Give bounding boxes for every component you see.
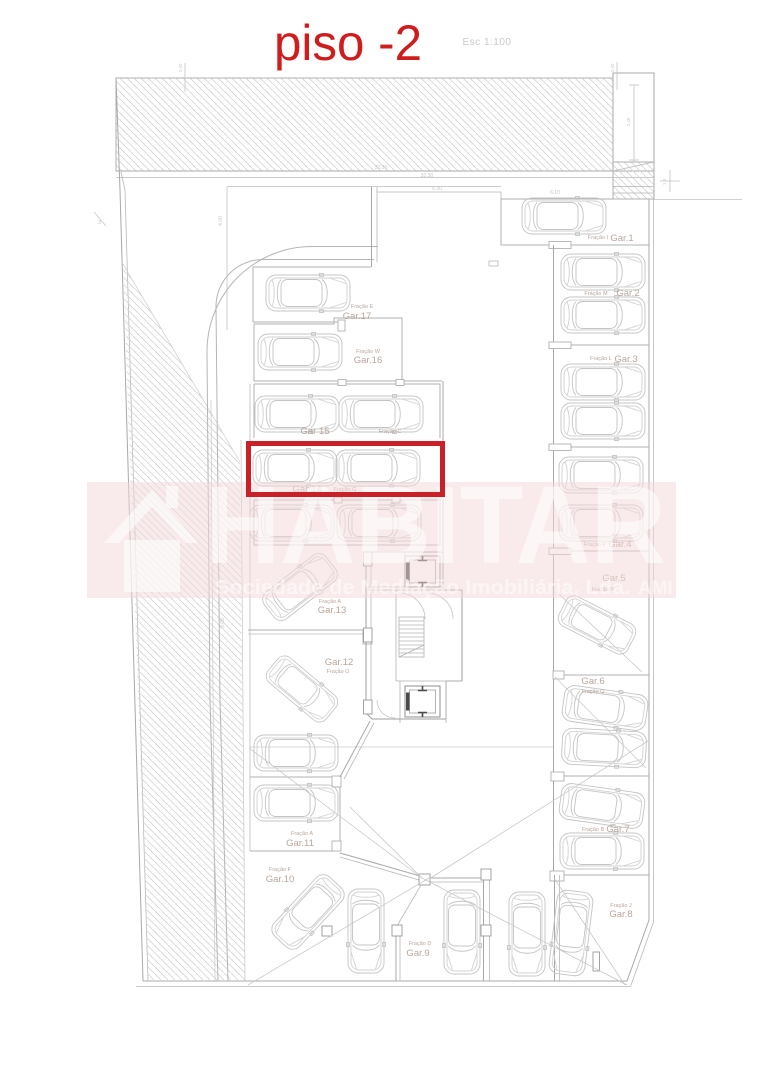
svg-text:Esc 1:100: Esc 1:100 <box>463 37 512 48</box>
svg-text:8.08: 8.08 <box>220 618 226 628</box>
svg-text:32.30: 32.30 <box>421 173 434 179</box>
svg-text:Fração M: Fração M <box>584 291 608 297</box>
svg-text:Fração W: Fração W <box>356 349 381 355</box>
svg-text:Gar.9: Gar.9 <box>406 948 429 959</box>
svg-text:Gar.6: Gar.6 <box>581 676 604 687</box>
svg-text:Fração O: Fração O <box>327 669 351 675</box>
svg-text:Fração L: Fração L <box>590 356 612 362</box>
svg-text:Gar.10: Gar.10 <box>266 874 295 885</box>
svg-text:2.40: 2.40 <box>610 63 615 72</box>
svg-text:Gar.1: Gar.1 <box>610 233 633 244</box>
svg-text:Gar.13: Gar.13 <box>318 605 347 616</box>
svg-text:Fração C: Fração C <box>379 429 402 435</box>
svg-text:Fração D: Fração D <box>409 941 432 947</box>
svg-text:Gar 15: Gar 15 <box>300 426 329 437</box>
svg-text:Fração I: Fração I <box>588 235 609 241</box>
svg-text:Gar.12: Gar.12 <box>325 657 354 668</box>
svg-text:6.10: 6.10 <box>550 190 560 196</box>
svg-text:Fração B: Fração B <box>582 827 605 833</box>
svg-text:Gar.7: Gar.7 <box>606 824 629 835</box>
svg-text:Sociedade de Mediação Imobiliá: Sociedade de Mediação Imobiliária, Lda. <box>215 577 630 599</box>
svg-text:1.9: 1.9 <box>662 178 667 185</box>
svg-text:2.40: 2.40 <box>178 63 183 72</box>
svg-text:Gar.16: Gar.16 <box>354 355 383 366</box>
svg-text:32.30: 32.30 <box>375 165 388 171</box>
svg-text:Gar.8: Gar.8 <box>609 909 632 920</box>
svg-text:Fração J: Fração J <box>610 903 632 909</box>
svg-text:piso -2: piso -2 <box>274 15 422 71</box>
svg-text:Fração A: Fração A <box>319 599 341 605</box>
svg-text:Gar.17: Gar.17 <box>343 311 372 322</box>
svg-text:Fração E: Fração E <box>351 304 374 310</box>
svg-text:.3: .3 <box>97 220 102 226</box>
svg-text:AMI: AMI <box>638 578 673 599</box>
svg-text:6.30: 6.30 <box>432 186 442 192</box>
svg-text:Gar.3: Gar.3 <box>614 354 637 365</box>
svg-text:HABITAR: HABITAR <box>205 464 666 587</box>
svg-text:Fração F: Fração F <box>269 867 292 873</box>
svg-text:Gar.11: Gar.11 <box>286 838 314 849</box>
svg-text:4.00: 4.00 <box>218 216 224 226</box>
svg-text:Fração A: Fração A <box>291 831 313 837</box>
svg-text:Fração Q: Fração Q <box>582 689 606 695</box>
svg-text:2.40: 2.40 <box>626 117 631 126</box>
svg-text:Gar.2: Gar.2 <box>616 288 639 299</box>
